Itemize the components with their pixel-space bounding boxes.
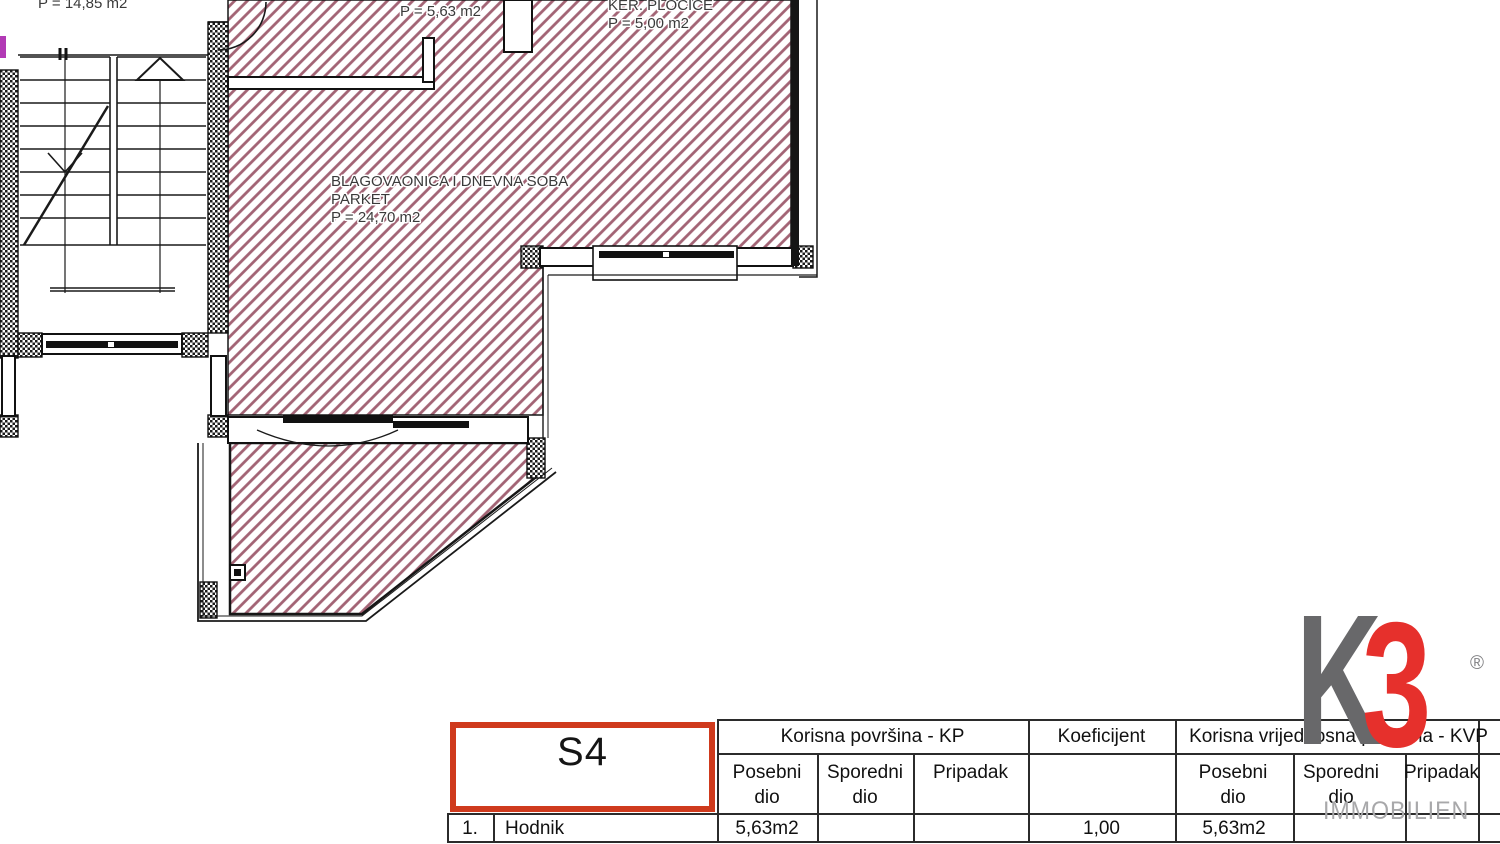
unit-id: S4 xyxy=(557,730,608,806)
living-room-floor-hatch xyxy=(228,0,791,415)
row-kp-sporedni xyxy=(819,815,911,841)
header-kvp-posebni: Posebni dio xyxy=(1185,757,1281,811)
row-kp-posebni: 5,63m2 xyxy=(719,815,815,841)
unit-id-box: S4 xyxy=(450,722,715,812)
kitchen-area-label: P = 5,00 m2 xyxy=(608,15,689,32)
terrace-door-wall xyxy=(228,415,528,446)
table-line xyxy=(493,813,495,841)
living-room-name-label: BLAGOVAONICA I DNEVNA SOBA xyxy=(331,173,568,190)
living-room-area-label: P = 24,70 m2 xyxy=(331,209,420,226)
header-kp-sporedni: Sporedni dio xyxy=(823,757,907,811)
registered-trademark-icon: ® xyxy=(1470,653,1484,675)
header-koeficijent: Koeficijent xyxy=(1030,721,1173,751)
living-room-floor-label: PARKET xyxy=(331,191,390,208)
table-line xyxy=(447,841,1500,843)
stairwell-window xyxy=(42,334,182,354)
row-name: Hodnik xyxy=(505,815,715,841)
staircase xyxy=(18,48,208,293)
stairwell-area-label: P = 14,85 m2 xyxy=(38,0,127,12)
header-kp-group: Korisna površina - KP xyxy=(719,721,1026,751)
magenta-artifact xyxy=(0,36,6,58)
row-kp-pripadak xyxy=(915,815,1026,841)
hallway-area-label: P = 5,63 m2 xyxy=(400,3,481,20)
stair-break-line xyxy=(24,106,108,245)
row-koeficijent: 1,00 xyxy=(1030,815,1173,841)
row-kvp-posebni: 5,63m2 xyxy=(1177,815,1291,841)
header-kp-posebni: Posebni dio xyxy=(727,757,807,811)
stair-start-mark xyxy=(60,48,66,60)
terrace-floor-hatch xyxy=(230,443,540,614)
logo-word: IMMOBILIEN xyxy=(1323,797,1469,826)
logo-letter-3: 3 xyxy=(1362,596,1431,774)
row-num: 1. xyxy=(447,815,493,841)
drain-symbol xyxy=(230,565,245,580)
header-kp-pripadak: Pripadak xyxy=(915,757,1026,787)
kitchen-name-label: KER. PLOČICE xyxy=(608,0,713,14)
floor-plan: P = 14,85 m2 P = 5,63 m2 KER. PLOČICE P … xyxy=(0,0,850,680)
k3-logo: K 3 ® IMMOBILIEN xyxy=(1310,640,1500,840)
stair-up-arrow-icon xyxy=(137,58,183,80)
